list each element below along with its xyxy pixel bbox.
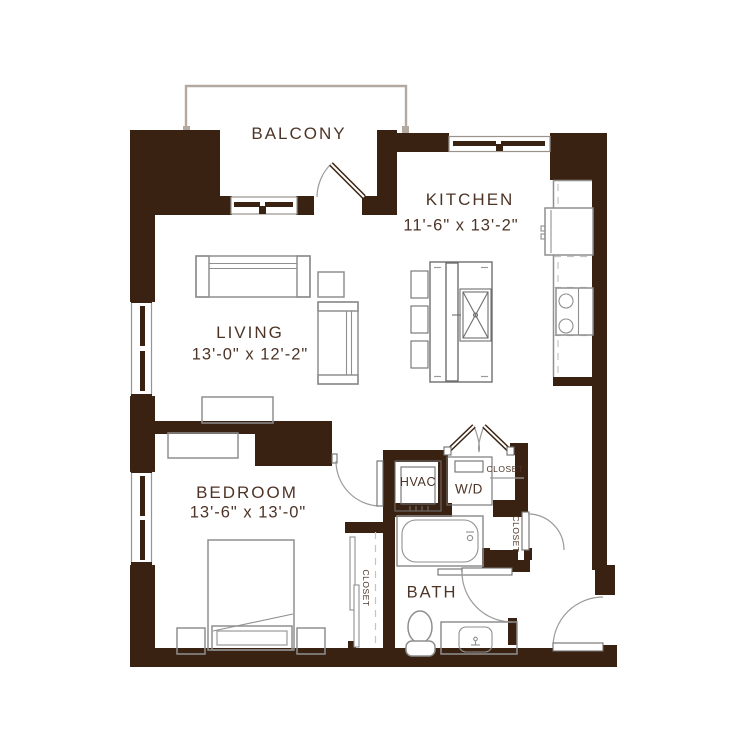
- bathtub-icon: [397, 516, 483, 566]
- refrigerator-icon: [541, 208, 593, 255]
- hall-closet-label: CLOSET: [486, 464, 523, 474]
- floor-plan-drawing: [0, 0, 750, 750]
- walls: [130, 130, 617, 667]
- entry-closet-label: CLOSET: [511, 515, 521, 552]
- dresser-icon: [168, 433, 238, 458]
- living-label: LIVING: [216, 323, 284, 343]
- kitchen-window: [449, 137, 550, 152]
- floor-plan: BALCONY KITCHEN 11'-6" x 13'-2" LIVING 1…: [0, 0, 750, 750]
- bedroom-window: [131, 467, 152, 568]
- kitchen-label: KITCHEN: [426, 190, 515, 210]
- entry-closet-door: [522, 512, 564, 550]
- kitchen-fixtures: [411, 180, 593, 382]
- sofa-icon: [196, 256, 310, 297]
- tv-console-icon: [202, 397, 273, 423]
- balcony-door: [317, 164, 364, 197]
- bar-stools: [411, 271, 428, 368]
- washer-dryer-label: W/D: [455, 482, 483, 497]
- balcony-label: BALCONY: [251, 124, 346, 144]
- living-dimensions: 13'-0" x 12'-2": [192, 346, 308, 365]
- range-icon: [556, 288, 593, 335]
- laundry-bifold-doors: [444, 426, 514, 455]
- bedroom-furniture: [168, 433, 376, 654]
- armchair-icon: [318, 302, 358, 384]
- bedroom-label: BEDROOM: [196, 483, 298, 503]
- bath-label: BATH: [407, 584, 458, 603]
- hvac-label: HVAC: [400, 475, 436, 489]
- side-table-icon: [318, 272, 344, 297]
- entry-door: [553, 597, 603, 651]
- bedroom-dimensions: 13'-6" x 13'-0": [190, 504, 306, 523]
- bedroom-door: [332, 454, 383, 506]
- bedroom-closet-label: CLOSET: [361, 569, 371, 606]
- kitchen-dimensions: 11'-6" x 13'-2": [403, 217, 518, 236]
- bed-icon: [208, 540, 294, 650]
- living-window: [131, 297, 152, 400]
- toilet-icon: [406, 611, 435, 656]
- kitchen-island: [411, 262, 492, 382]
- balcony-window: [231, 197, 297, 214]
